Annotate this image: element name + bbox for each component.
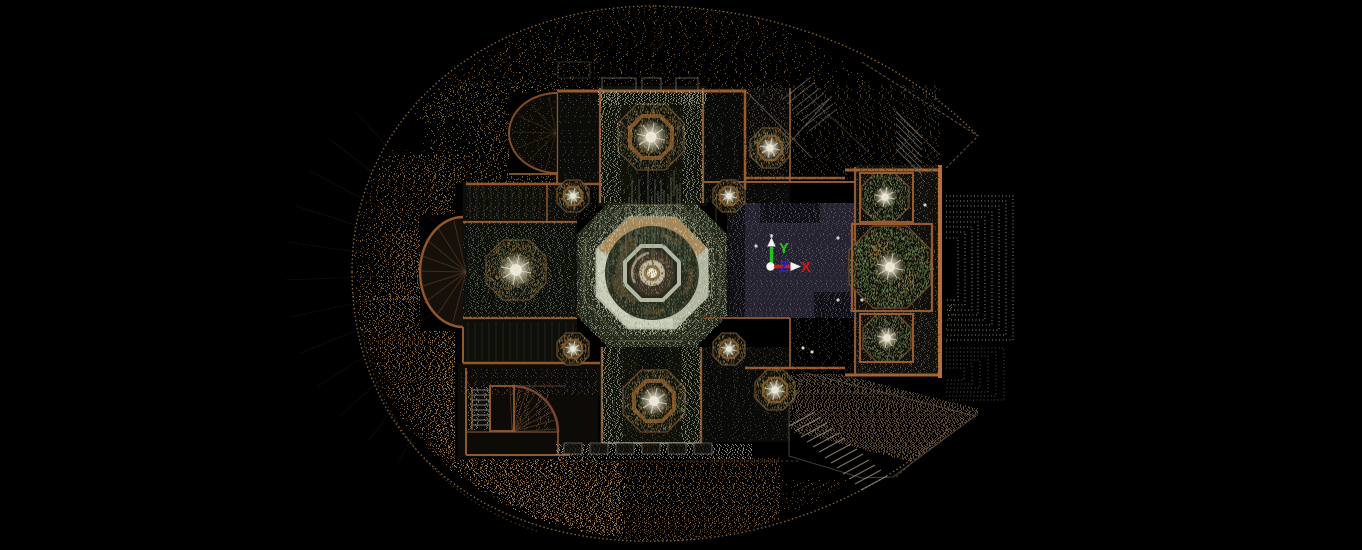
svg-text:Y: Y <box>779 240 789 257</box>
svg-text:Z: Z <box>779 259 789 276</box>
svg-text:X: X <box>801 259 811 276</box>
